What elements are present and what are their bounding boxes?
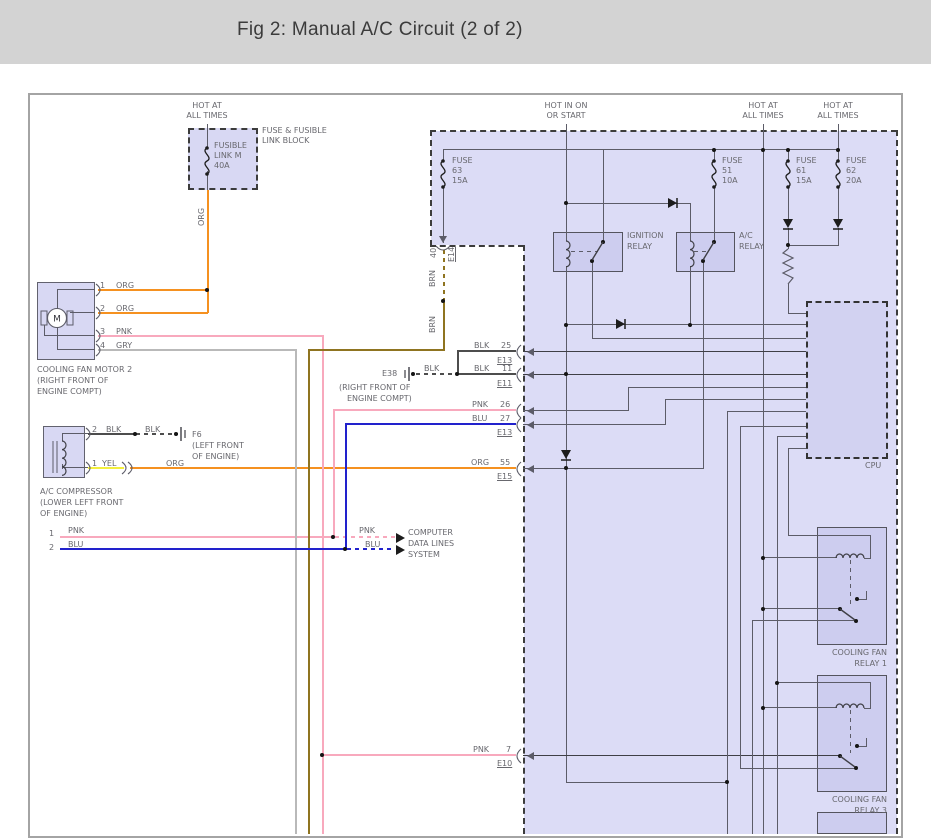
- cooling-fan-relay1-2: RELAY 1: [854, 659, 887, 669]
- fuse-51-2: 51: [722, 166, 732, 176]
- fuse-symbol: [205, 146, 209, 176]
- ignition-relay-2: RELAY: [627, 242, 652, 252]
- ground-e38: E38: [382, 369, 397, 379]
- motor-pin-3-color: PNK: [116, 327, 132, 337]
- fuse-63-2: 63: [452, 166, 462, 176]
- conn-27-color: BLU: [472, 414, 487, 424]
- conn-40-pin: 40: [429, 248, 439, 258]
- ac-relay-2: RELAY: [739, 242, 764, 252]
- dataline-2-color-b: BLU: [365, 540, 380, 550]
- conn-27-name: E13: [497, 428, 512, 438]
- dataline-1-num: 1: [49, 529, 54, 539]
- ground-f6-icon: [181, 427, 185, 441]
- compressor-pin-1-color-b: ORG: [166, 459, 184, 469]
- fusible-link-1: FUSIBLE: [214, 141, 247, 151]
- fuse-61-1: FUSE: [796, 156, 817, 166]
- dataline-2-color: BLU: [68, 540, 83, 550]
- conn-11-name: E11: [497, 379, 512, 389]
- relay-switch-arm: [840, 609, 855, 620]
- hot-at-all-times-mid-1: HOT AT: [748, 101, 777, 111]
- computer-datalines-1: COMPUTER: [408, 528, 453, 538]
- diode-icon: [833, 219, 843, 229]
- motor-icon: M: [41, 309, 73, 328]
- hot-at-all-times-right-2: ALL TIMES: [817, 111, 858, 121]
- relay-coil-icon: [566, 241, 570, 267]
- dataline-2-num: 2: [49, 543, 54, 553]
- conn-7-color: PNK: [473, 745, 489, 755]
- conn-7-pin: 7: [506, 745, 511, 755]
- fuse-62-3: 20A: [846, 176, 862, 186]
- motor-pin-1: 1: [100, 281, 105, 291]
- compressor-pin-2: 2: [92, 425, 97, 435]
- hot-at-all-times-left-2: ALL TIMES: [186, 111, 227, 121]
- motor-pin-2: 2: [100, 304, 105, 314]
- fuse-61-2: 61: [796, 166, 806, 176]
- connector-pin-icon: [86, 462, 90, 474]
- fuse-block-2: LINK BLOCK: [262, 136, 309, 146]
- compressor-pin-2-color: BLK: [106, 425, 121, 435]
- diode-icon: [616, 319, 625, 329]
- symbol-layer: M: [0, 0, 931, 838]
- wire-org-vertical: ORG: [197, 208, 207, 226]
- cooling-fan-relay1-1: COOLING FAN: [832, 648, 887, 658]
- conn-11-color: BLK: [474, 364, 489, 374]
- cpu-label: CPU: [865, 461, 881, 471]
- fusible-link-2: LINK M: [214, 151, 242, 161]
- ground-f6-loc-1: (LEFT FRONT: [192, 441, 244, 451]
- motor-pin-4-color: GRY: [116, 341, 132, 351]
- cooling-fan-relay3-2: RELAY 3: [854, 806, 887, 816]
- hot-at-all-times-right-1: HOT AT: [823, 101, 852, 111]
- fuse-symbol: [786, 159, 790, 189]
- fuse-62-2: 62: [846, 166, 856, 176]
- wiring-diagram-page: Fig 2: Manual A/C Circuit (2 of 2) M HOT…: [0, 0, 931, 838]
- harness-connector-icon: [517, 345, 521, 359]
- relay-coil-icon: [62, 441, 66, 475]
- relay-switch-arm: [840, 756, 855, 767]
- wire-brn-2: BRN: [428, 316, 438, 333]
- svg-text:M: M: [53, 315, 61, 325]
- ground-f6-loc-2: OF ENGINE): [192, 452, 239, 462]
- motor-name-3: ENGINE COMPT): [37, 387, 102, 397]
- fuse-63-1: FUSE: [452, 156, 473, 166]
- relay-coil-icon: [690, 241, 694, 267]
- dataline-1-color-b: PNK: [359, 526, 375, 536]
- fuse-block-1: FUSE & FUSIBLE: [262, 126, 327, 136]
- diode-icon: [668, 198, 677, 208]
- conn-27-pin: 27: [500, 414, 510, 424]
- fuse-symbol: [441, 159, 445, 189]
- harness-connector-icon: [517, 418, 521, 432]
- relay-switch-arm: [592, 242, 603, 260]
- ground-e38-icon: [405, 367, 409, 381]
- computer-datalines-2: DATA LINES: [408, 539, 454, 549]
- diode-icon: [783, 219, 793, 229]
- diode-icon: [561, 450, 571, 460]
- cooling-fan-relay3-1: COOLING FAN: [832, 795, 887, 805]
- harness-connector-icon: [517, 749, 521, 763]
- compressor-name-2: (LOWER LEFT FRONT: [40, 498, 123, 508]
- motor-pin-1-color: ORG: [116, 281, 134, 291]
- conn-55-color: ORG: [471, 458, 489, 468]
- harness-connector-icon: [517, 404, 521, 418]
- motor-pin-4: 4: [100, 341, 105, 351]
- fuse-62-1: FUSE: [846, 156, 867, 166]
- computer-datalines-3: SYSTEM: [408, 550, 440, 560]
- resistor-icon: [783, 249, 793, 284]
- relay-switch-arm: [703, 242, 714, 260]
- hot-at-all-times-left-1: HOT AT: [192, 101, 221, 111]
- fuse-61-3: 15A: [796, 176, 812, 186]
- fuse-63-3: 15A: [452, 176, 468, 186]
- conn-55-name: E15: [497, 472, 512, 482]
- harness-connector-icon: [517, 462, 521, 476]
- relay-coil-icon: [836, 704, 864, 708]
- inline-connector-icon: [122, 462, 132, 474]
- conn-26-pin: 26: [500, 400, 510, 410]
- hot-at-all-times-mid-2: ALL TIMES: [742, 111, 783, 121]
- conn-25-color: BLK: [474, 341, 489, 351]
- compressor-pin-2-color-b: BLK: [145, 425, 160, 435]
- motor-pin-2-color: ORG: [116, 304, 134, 314]
- fuse-symbol: [712, 159, 716, 189]
- wire-brn-1: BRN: [428, 270, 438, 287]
- compressor-pin-1-color: YEL: [102, 459, 116, 469]
- fuse-51-1: FUSE: [722, 156, 743, 166]
- motor-name-2: (RIGHT FRONT OF: [37, 376, 108, 386]
- ground-e38-color: BLK: [424, 364, 439, 374]
- dataline-1-color: PNK: [68, 526, 84, 536]
- compressor-name-1: A/C COMPRESSOR: [40, 487, 113, 497]
- conn-e14-name: E14: [447, 247, 457, 262]
- conn-25-pin: 25: [501, 341, 511, 351]
- harness-connector-icon: [517, 368, 521, 382]
- ground-f6: F6: [192, 430, 202, 440]
- conn-11-pin: 11: [502, 364, 512, 374]
- fuse-51-3: 10A: [722, 176, 738, 186]
- conn-7-name: E10: [497, 759, 512, 769]
- fusible-link-3: 40A: [214, 161, 230, 171]
- ground-e38-loc-2: ENGINE COMPT): [347, 394, 412, 404]
- motor-name-1: COOLING FAN MOTOR 2: [37, 365, 132, 375]
- compressor-name-3: OF ENGINE): [40, 509, 87, 519]
- conn-26-color: PNK: [472, 400, 488, 410]
- hot-in-on-2: OR START: [546, 111, 585, 121]
- connector-pin-icon: [86, 428, 90, 440]
- relay-coil-icon: [836, 554, 864, 558]
- ground-e38-loc-1: (RIGHT FRONT OF: [339, 383, 410, 393]
- hot-in-on-1: HOT IN ON: [545, 101, 588, 111]
- motor-pin-3: 3: [100, 327, 105, 337]
- fuse-symbol: [836, 159, 840, 189]
- compressor-pin-1: 1: [92, 459, 97, 469]
- ignition-relay-1: IGNITION: [627, 231, 663, 241]
- ac-relay-1: A/C: [739, 231, 753, 241]
- conn-55-pin: 55: [500, 458, 510, 468]
